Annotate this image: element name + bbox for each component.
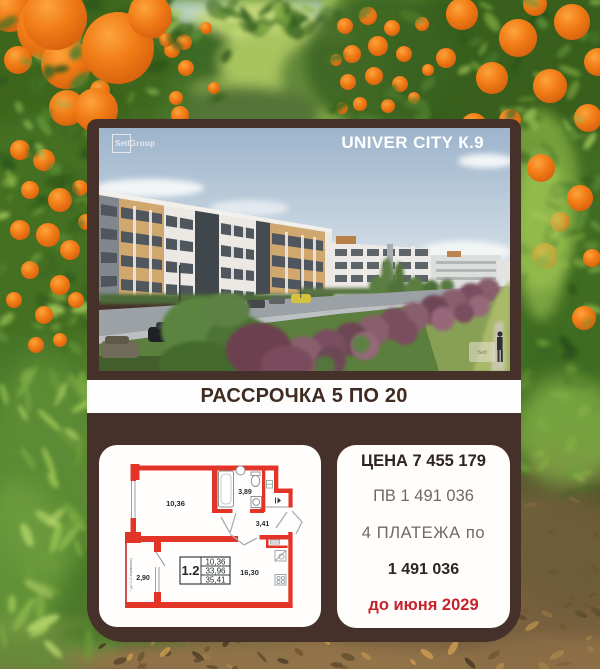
svg-text:1.2: 1.2 <box>181 563 199 578</box>
svg-text:33,96: 33,96 <box>205 567 226 576</box>
svg-text:10,36: 10,36 <box>205 558 226 567</box>
svg-text:2,90: 2,90 <box>136 575 150 582</box>
svg-text:10,36: 10,36 <box>166 499 185 508</box>
svg-text:3,89: 3,89 <box>238 489 252 496</box>
svg-text:* до 2 (2 вниманию): * до 2 (2 вниманию) <box>129 558 133 591</box>
svg-text:3,41: 3,41 <box>256 521 270 528</box>
svg-text:35,41: 35,41 <box>205 576 226 585</box>
svg-text:16,30: 16,30 <box>240 568 259 577</box>
svg-text:Setl: Setl <box>477 350 486 356</box>
